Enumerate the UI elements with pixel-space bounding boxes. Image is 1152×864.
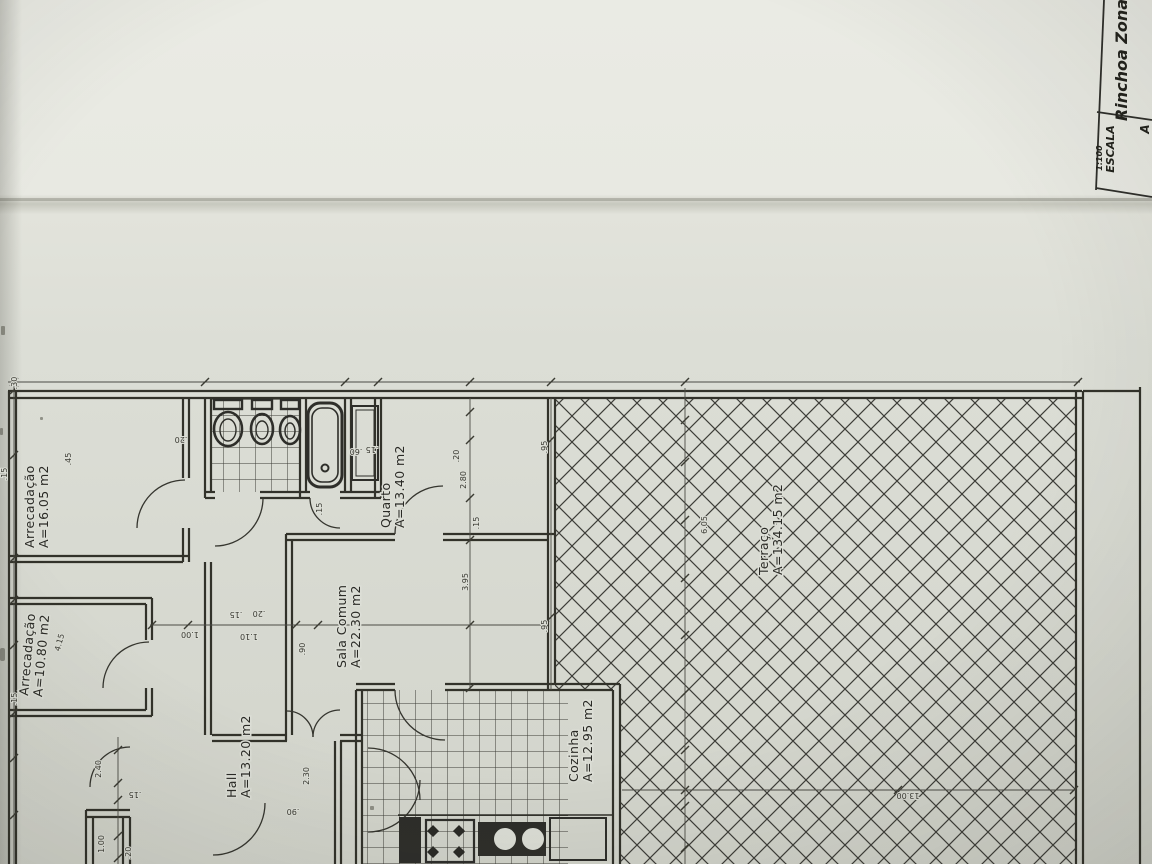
floorplan-drawing: ArrecadaçãoA=16.05 m2ArrecadaçãoA=10.80 … [0, 0, 1152, 864]
floorplan-photo: ArrecadaçãoA=16.05 m2ArrecadaçãoA=10.80 … [0, 0, 1152, 864]
photo-vignette [0, 0, 1152, 864]
